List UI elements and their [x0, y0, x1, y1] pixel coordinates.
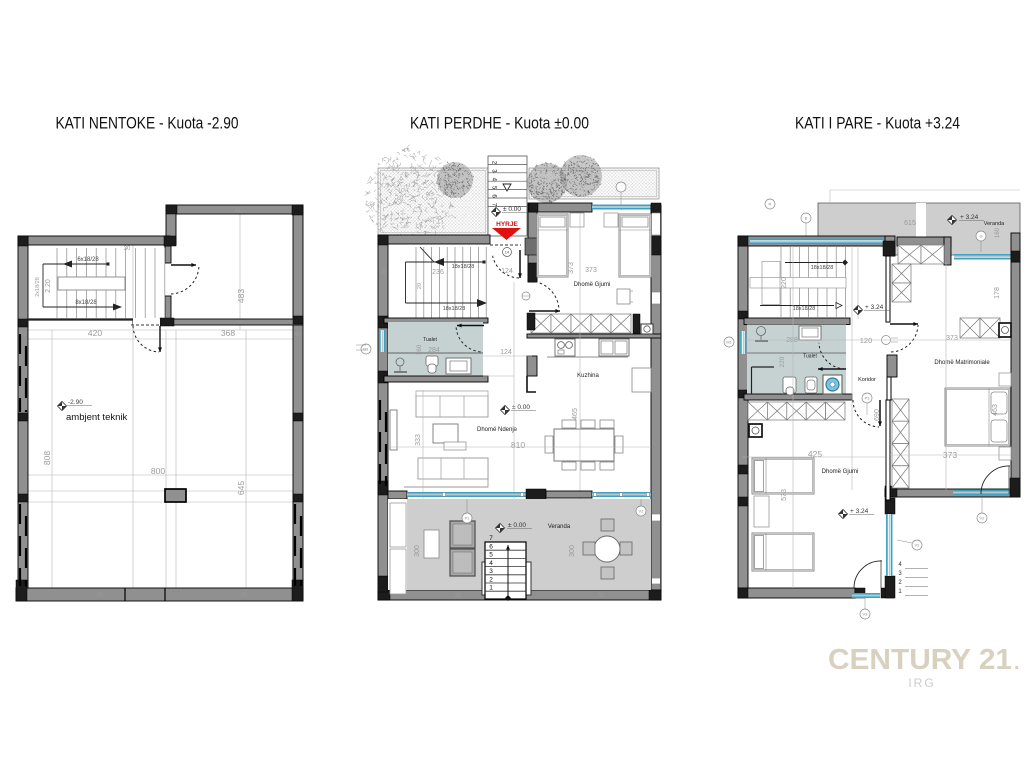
svg-text:18x18/28: 18x18/28 — [793, 306, 816, 312]
svg-text:P1: P1 — [465, 517, 470, 521]
svg-text:ambjent teknik: ambjent teknik — [66, 412, 128, 423]
svg-text:+ 3.24: + 3.24 — [865, 304, 884, 311]
svg-text:Dhomë Gjumi: Dhomë Gjumi — [574, 282, 611, 288]
svg-text:P3: P3 — [865, 397, 870, 401]
svg-text:236: 236 — [432, 269, 444, 276]
svg-text:Dhomë Matrimoniale: Dhomë Matrimoniale — [934, 360, 990, 366]
svg-text:Tualet: Tualet — [423, 337, 437, 343]
svg-text:8x18/28: 8x18/28 — [75, 300, 97, 306]
svg-text:V2: V2 — [980, 517, 985, 521]
svg-text:124: 124 — [500, 349, 512, 356]
svg-text:808: 808 — [42, 451, 52, 465]
svg-text:14: 14 — [505, 250, 510, 255]
svg-text:KATI NENTOKE - Kuota -2.90: KATI NENTOKE - Kuota -2.90 — [56, 114, 239, 133]
svg-text:18x18/28: 18x18/28 — [443, 306, 466, 312]
svg-text:6: 6 — [489, 544, 493, 551]
svg-text:30: 30 — [381, 269, 387, 275]
svg-text:615: 615 — [904, 220, 916, 227]
svg-text:220: 220 — [781, 277, 788, 289]
svg-text:465: 465 — [572, 408, 579, 420]
svg-text:160: 160 — [416, 344, 423, 355]
svg-text:Kuzhina: Kuzhina — [577, 373, 599, 379]
svg-text:+ 3.24: + 3.24 — [850, 508, 869, 515]
svg-text:± 0.00: ± 0.00 — [503, 206, 521, 213]
svg-text:220: 220 — [779, 356, 786, 367]
svg-text:6x18/28: 6x18/28 — [77, 257, 99, 263]
svg-text:573: 573 — [781, 489, 788, 501]
svg-text:810: 810 — [511, 440, 525, 450]
svg-text:2.20: 2.20 — [45, 279, 52, 293]
svg-text:690: 690 — [874, 409, 881, 421]
svg-text:18x18/28: 18x18/28 — [452, 264, 475, 270]
svg-text:± 0.00: ± 0.00 — [508, 522, 526, 529]
svg-text:Veranda: Veranda — [548, 524, 571, 530]
svg-text:Veranda: Veranda — [984, 221, 1005, 227]
svg-text:178: 178 — [994, 287, 1001, 299]
svg-text:800: 800 — [151, 466, 165, 476]
svg-text:120: 120 — [860, 336, 873, 345]
svg-text:30: 30 — [241, 593, 248, 599]
svg-text:30: 30 — [97, 593, 104, 599]
svg-text:30: 30 — [455, 593, 462, 599]
svg-text:645: 645 — [236, 481, 246, 495]
svg-text:18x18/28: 18x18/28 — [811, 265, 834, 271]
svg-text:284: 284 — [428, 347, 440, 354]
svg-text:KATI I PARE - Kuota +3.24: KATI I PARE - Kuota +3.24 — [795, 114, 960, 133]
svg-text:300: 300 — [414, 545, 421, 557]
svg-text:30: 30 — [124, 246, 131, 252]
svg-text:-2.90: -2.90 — [68, 399, 83, 406]
svg-text:463: 463 — [992, 404, 999, 416]
svg-text:± 0.00: ± 0.00 — [512, 404, 530, 411]
svg-text:1: 1 — [489, 585, 493, 592]
svg-text:.: . — [1014, 652, 1020, 674]
svg-text:+ 3.24: + 3.24 — [960, 214, 979, 221]
svg-text:M1: M1 — [726, 341, 731, 345]
svg-text:368: 368 — [221, 328, 235, 338]
svg-text:CENTURY 21: CENTURY 21 — [828, 644, 1012, 676]
svg-text:2: 2 — [489, 576, 493, 583]
svg-text:V3: V3 — [863, 613, 868, 617]
svg-text:KATI PERDHE - Kuota ±0.00: KATI PERDHE - Kuota ±0.00 — [410, 114, 589, 133]
svg-text:3: 3 — [489, 568, 493, 575]
svg-text:425: 425 — [808, 449, 822, 459]
svg-text:420: 420 — [88, 328, 102, 338]
svg-text:5: 5 — [489, 552, 493, 559]
svg-text:M1: M1 — [363, 348, 368, 352]
svg-text:Koridor: Koridor — [858, 377, 876, 383]
svg-text:30: 30 — [598, 593, 605, 599]
svg-text:288: 288 — [786, 337, 798, 344]
svg-text:Dhomë Ndenje: Dhomë Ndenje — [477, 427, 518, 433]
svg-text:30: 30 — [234, 208, 241, 214]
svg-text:V2: V2 — [639, 510, 644, 514]
svg-text:Tualet: Tualet — [803, 354, 817, 360]
svg-text:20: 20 — [417, 283, 423, 289]
svg-text:V2: V2 — [915, 544, 920, 548]
svg-text:R: R — [769, 202, 772, 207]
svg-text:2x18/28: 2x18/28 — [35, 277, 41, 297]
svg-text:Dhomë Gjumi: Dhomë Gjumi — [822, 469, 859, 475]
svg-text:300: 300 — [569, 545, 576, 557]
svg-text:333: 333 — [415, 434, 422, 446]
svg-text:124: 124 — [501, 268, 513, 275]
svg-text:IRG: IRG — [908, 676, 935, 690]
svg-text:4: 4 — [489, 560, 493, 567]
svg-text:7: 7 — [489, 535, 493, 542]
svg-text:160: 160 — [995, 227, 1001, 238]
svg-text:40: 40 — [295, 332, 302, 338]
svg-text:B: B — [805, 216, 808, 221]
svg-text:483: 483 — [236, 289, 246, 303]
svg-text:HYRJE: HYRJE — [496, 221, 518, 228]
svg-text:373: 373 — [585, 267, 597, 274]
svg-text:G: G — [979, 234, 982, 239]
svg-text:373: 373 — [946, 335, 958, 342]
svg-text:373: 373 — [568, 262, 575, 274]
